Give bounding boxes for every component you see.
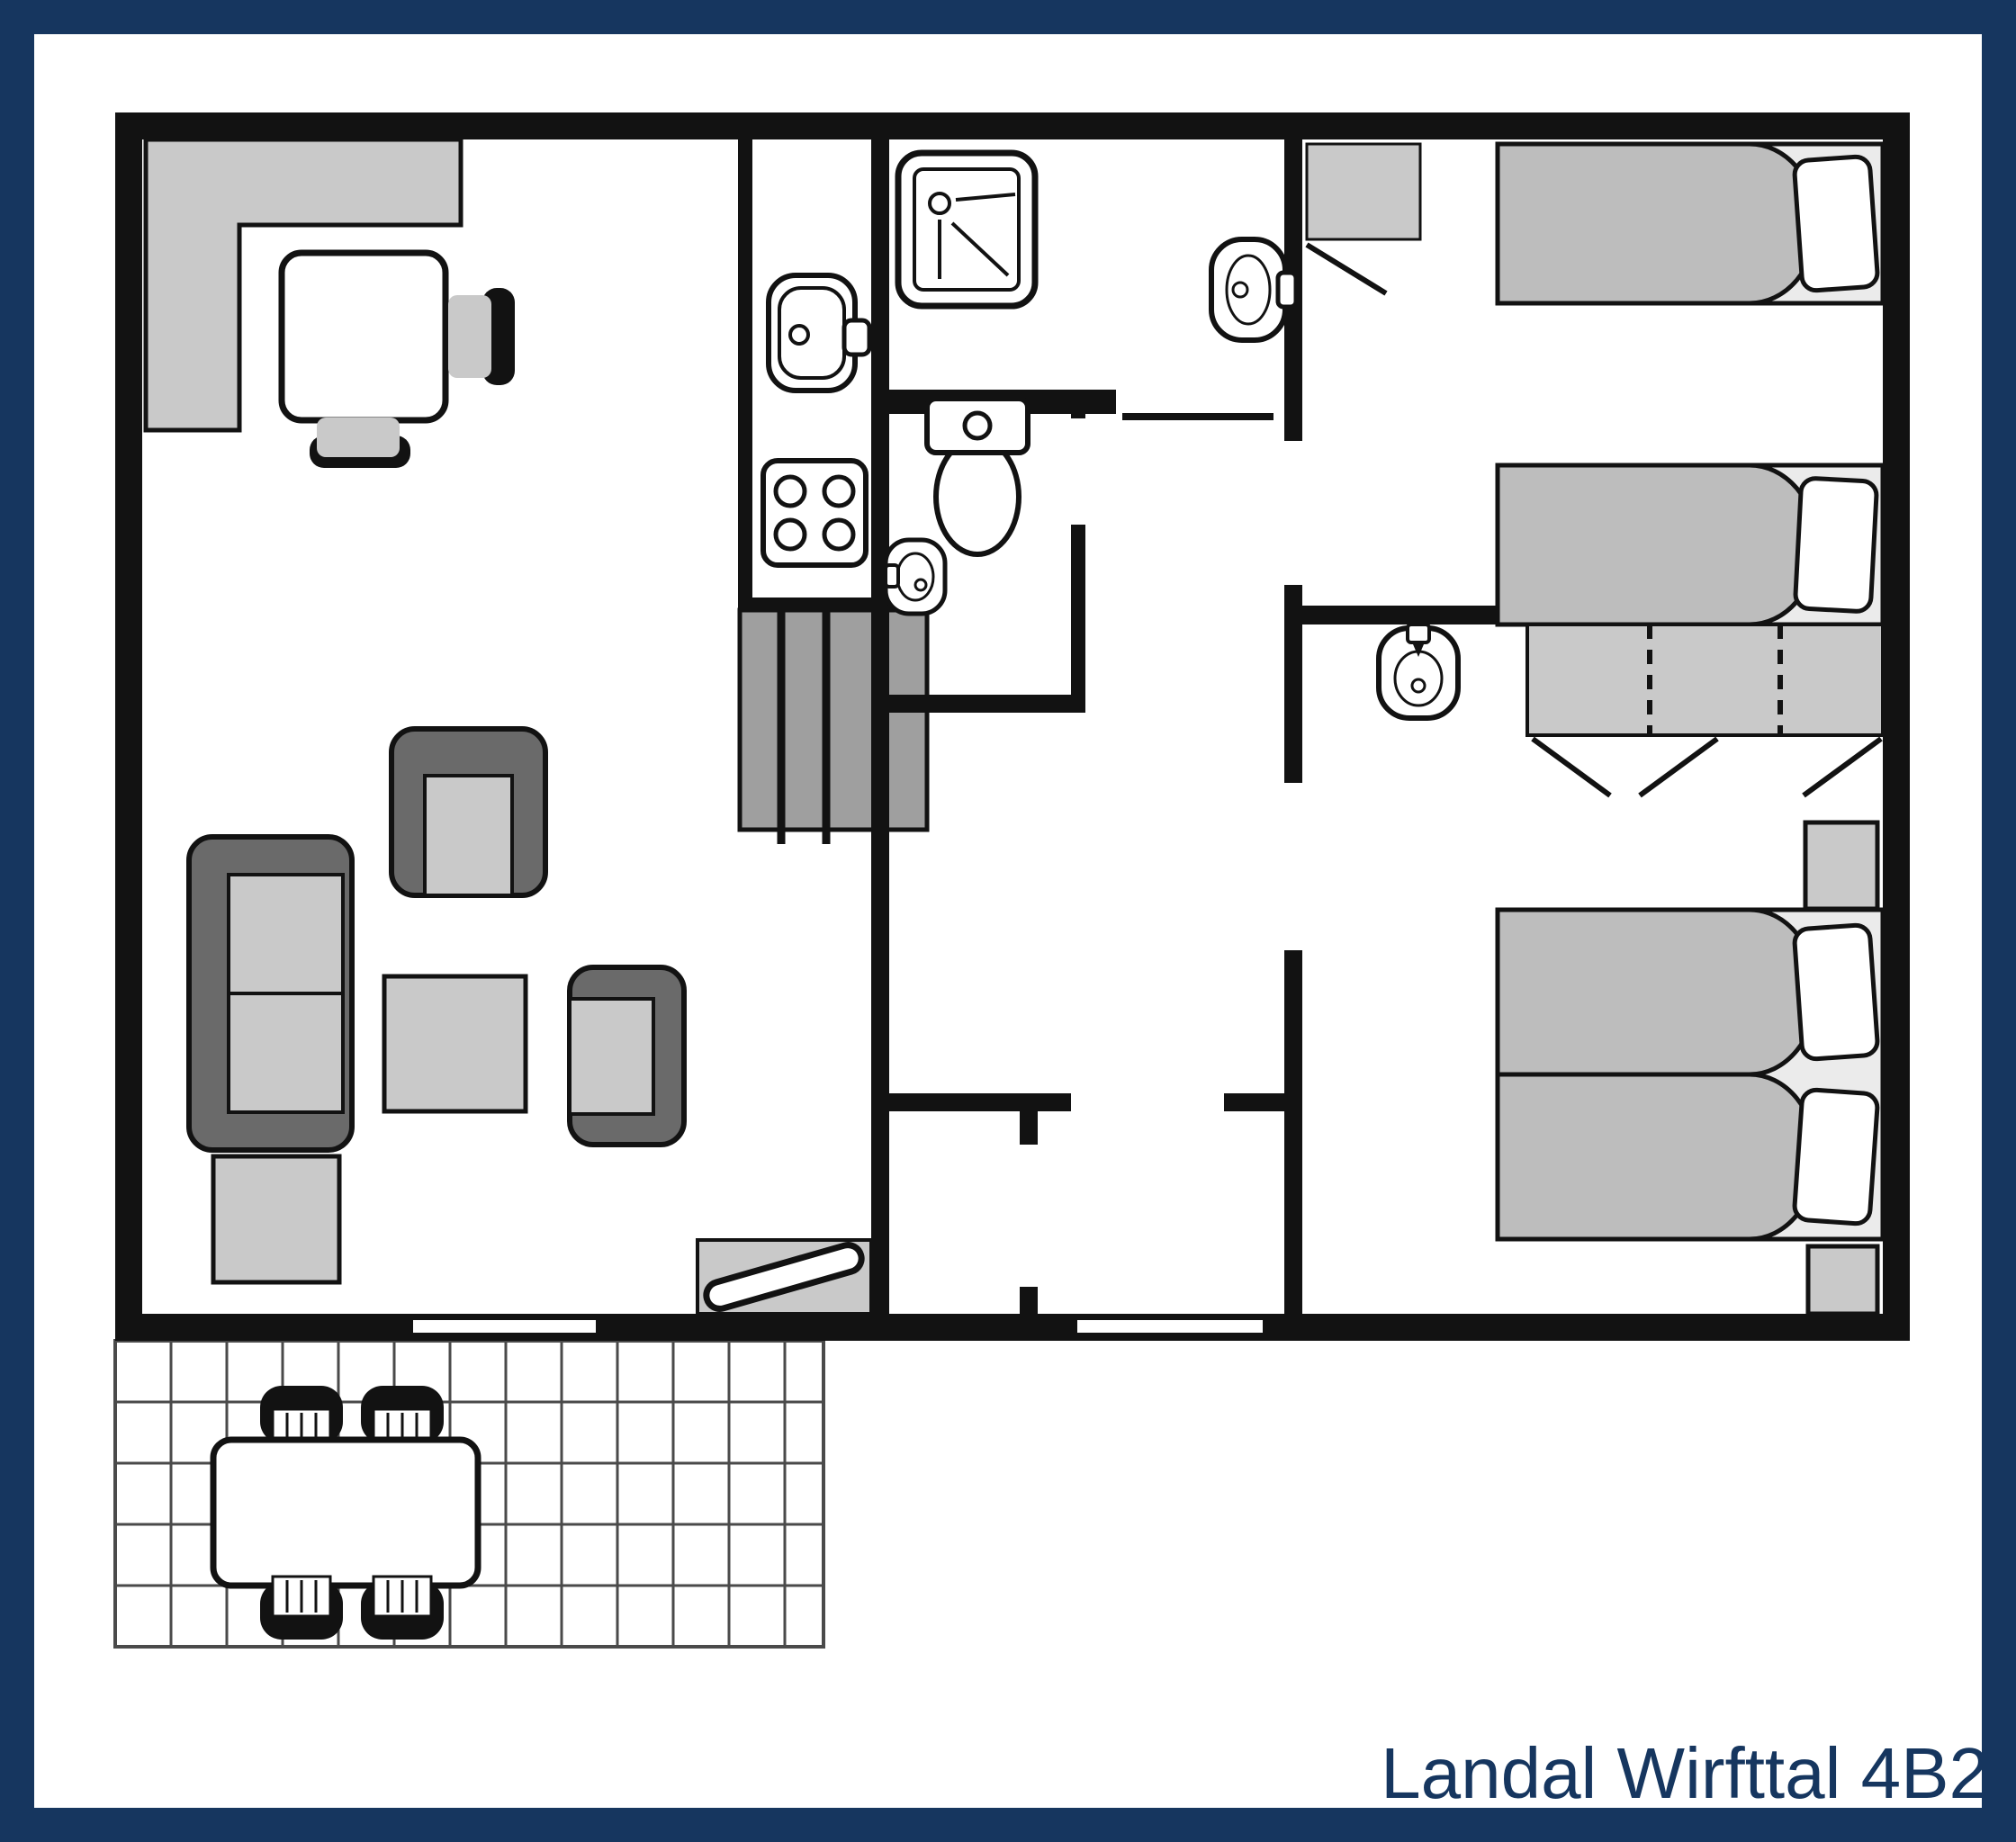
armchair-icon <box>570 967 684 1145</box>
double-bed-icon <box>1498 910 1883 1239</box>
wall-right <box>1883 112 1910 1341</box>
kitchen-counter-edge <box>738 598 891 610</box>
wall-wc-bottom <box>889 695 1085 713</box>
door-swing-closet <box>1307 245 1386 293</box>
wall-kitchen-left <box>738 139 752 610</box>
shower-icon <box>898 153 1035 306</box>
wall-center <box>871 139 889 1314</box>
floor-plan-page: Landal Wirfttal 4B2 <box>0 0 2016 1842</box>
door-opening-vestibule <box>1020 1145 1038 1287</box>
dining-chair-icon <box>310 418 410 468</box>
wall-vestibule-top-left <box>889 1093 1071 1111</box>
armchair-icon <box>391 729 545 895</box>
wall-left <box>115 112 142 1341</box>
terrace-table-icon <box>213 1440 478 1586</box>
wall-bottom <box>115 1314 1910 1341</box>
dining-chair-icon <box>448 288 515 385</box>
single-bed-icon <box>1498 465 1883 624</box>
single-bed-icon <box>1498 144 1883 303</box>
nightstand-icon <box>1805 822 1877 909</box>
washbasin-icon <box>1211 239 1296 340</box>
terrace-chair-icon <box>260 1577 343 1640</box>
entrance-door-icon <box>697 1240 871 1314</box>
door-leaf-bathroom <box>1122 413 1273 420</box>
door-opening-bedroom-1 <box>1284 441 1302 585</box>
staircase-icon <box>740 610 927 844</box>
door-opening-bedroom-2 <box>1284 783 1302 950</box>
door-opening-wc <box>1071 418 1085 525</box>
dining-table-icon <box>282 253 445 420</box>
plan-title: Landal Wirfttal 4B2 <box>1381 1733 1989 1813</box>
coffee-table-icon <box>384 976 526 1111</box>
terrace-chair-icon <box>361 1577 444 1640</box>
nightstand-icon <box>1808 1246 1877 1314</box>
closet-icon <box>1307 144 1420 239</box>
kitchen-sink-icon <box>769 275 869 391</box>
wall-top <box>115 112 1910 139</box>
washbasin-icon <box>1379 624 1458 718</box>
wardrobe-icon <box>1527 624 1883 795</box>
washbasin-icon <box>886 540 945 614</box>
side-table-icon <box>213 1156 339 1282</box>
sofa-icon <box>189 837 352 1150</box>
toilet-icon <box>927 399 1028 554</box>
wall-vestibule-top-right <box>1224 1093 1284 1111</box>
window-hall <box>1077 1320 1263 1333</box>
window-living-room <box>413 1320 596 1333</box>
stove-icon <box>763 461 866 565</box>
floor-plan-drawing: Landal Wirfttal 4B2 <box>0 0 2016 1842</box>
